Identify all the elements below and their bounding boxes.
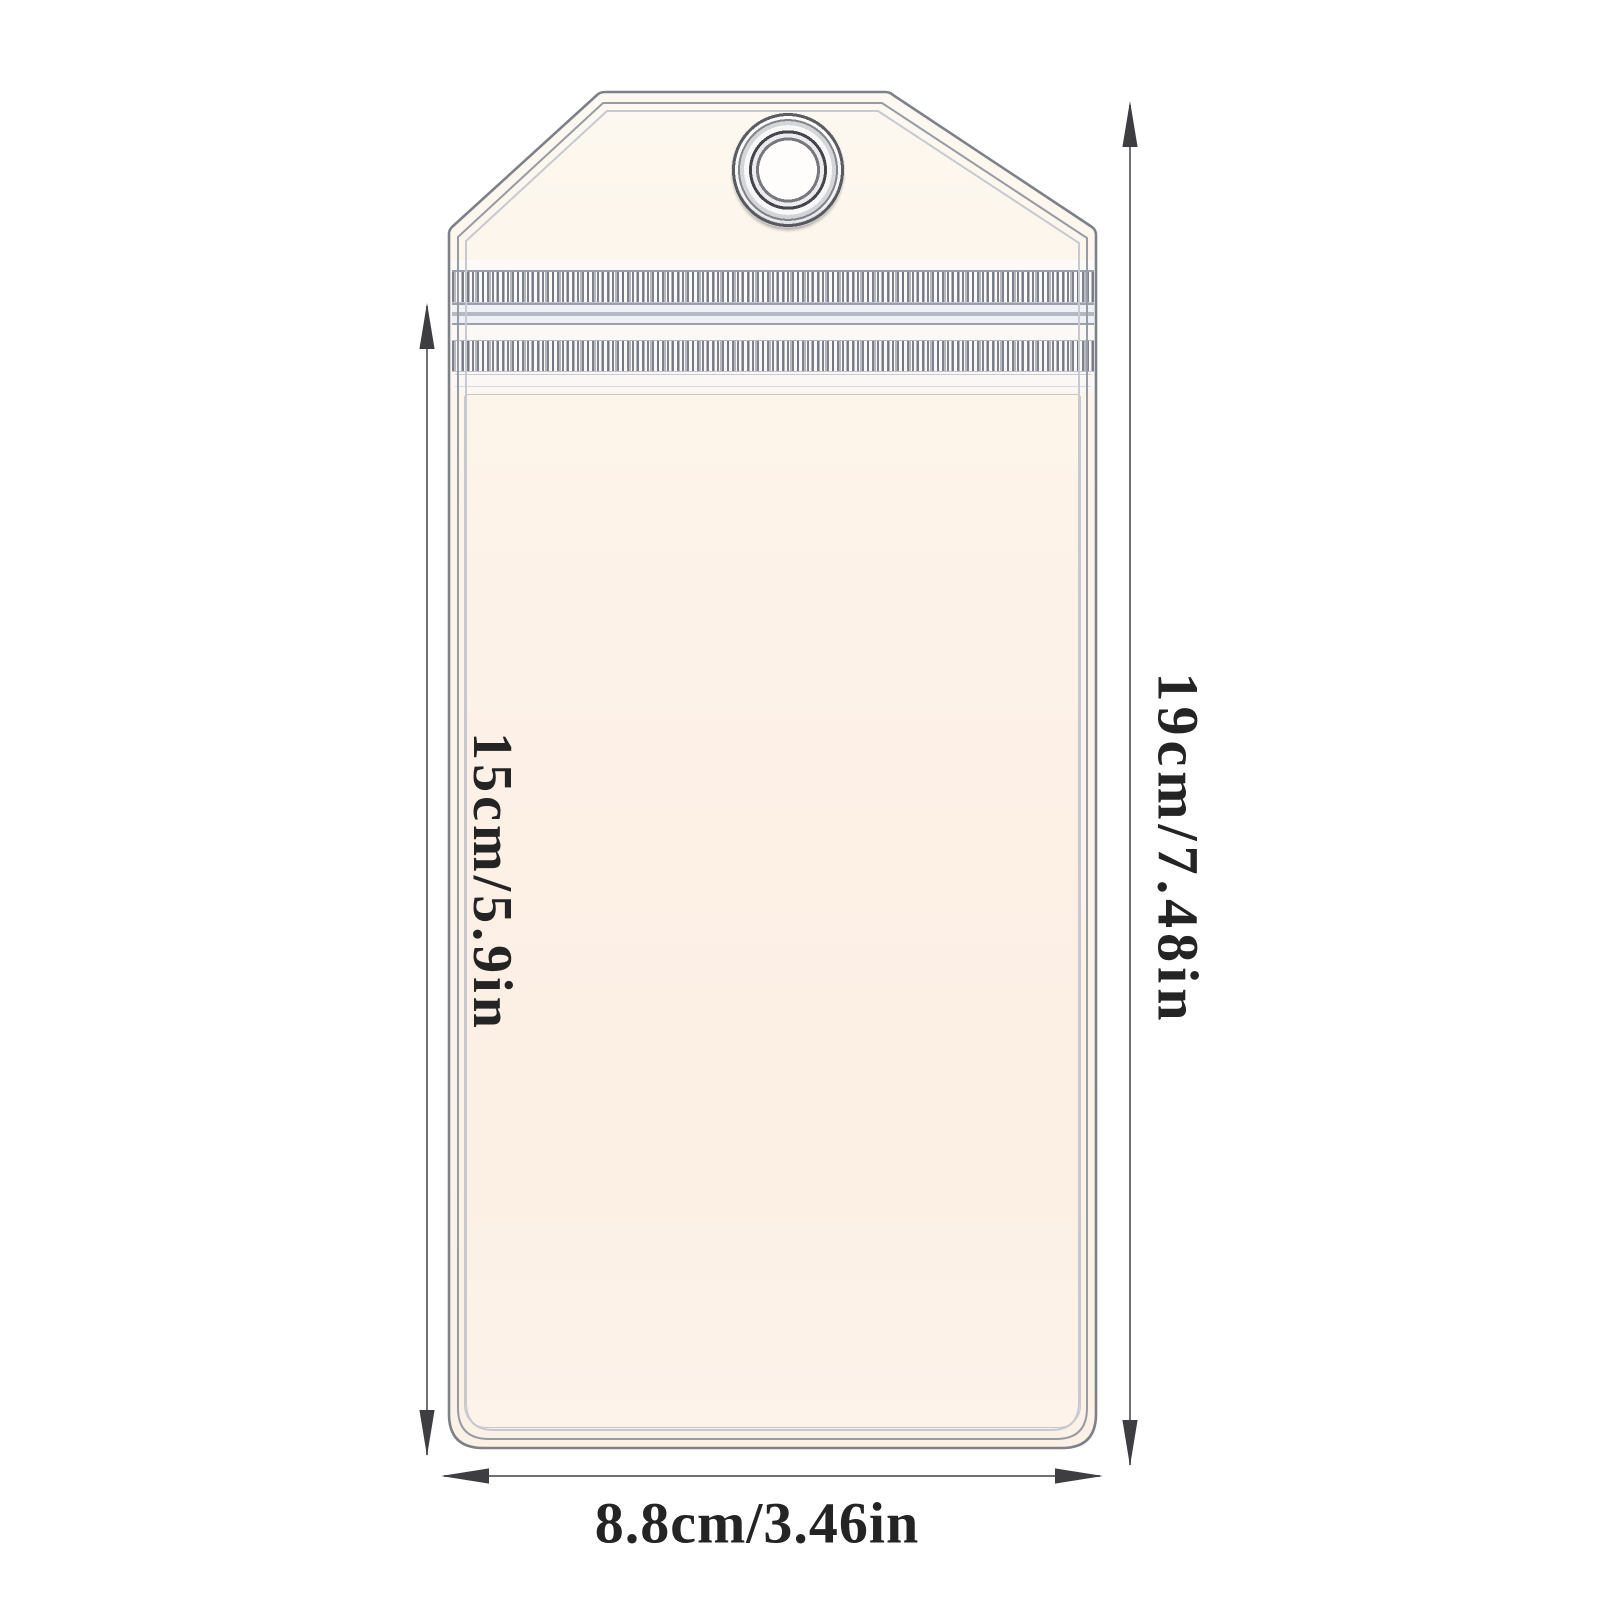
total-height-arrow-down-icon bbox=[1120, 1420, 1140, 1466]
pouch-height-dimension-line bbox=[426, 306, 428, 1455]
product-dimension-diagram: 15cm/5.9in 19cm/7.48in 8.8cm/3.46in bbox=[0, 0, 1600, 1600]
zipper-teeth-top bbox=[452, 270, 1094, 303]
pouch-height-arrow-down-icon bbox=[417, 1410, 437, 1456]
total-height-dimension-label: 19cm/7.48in bbox=[1145, 672, 1212, 1025]
pouch-panel bbox=[464, 394, 1081, 1428]
eyelet-grommet-icon bbox=[731, 112, 845, 228]
zipper-teeth-bottom bbox=[452, 340, 1094, 372]
total-height-dimension-line bbox=[1129, 105, 1131, 1465]
pouch-height-dimension-label: 15cm/5.9in bbox=[460, 732, 524, 1032]
width-dimension-line bbox=[444, 1475, 1100, 1477]
zipper-slider-track bbox=[452, 303, 1094, 327]
width-dimension-label: 8.8cm/3.46in bbox=[595, 1490, 920, 1557]
width-arrow-left-icon bbox=[441, 1466, 489, 1486]
total-height-arrow-up-icon bbox=[1120, 101, 1140, 147]
zipper-bottom-seam bbox=[455, 374, 1091, 387]
pouch-height-arrow-up-icon bbox=[417, 303, 437, 349]
width-arrow-right-icon bbox=[1055, 1466, 1103, 1486]
